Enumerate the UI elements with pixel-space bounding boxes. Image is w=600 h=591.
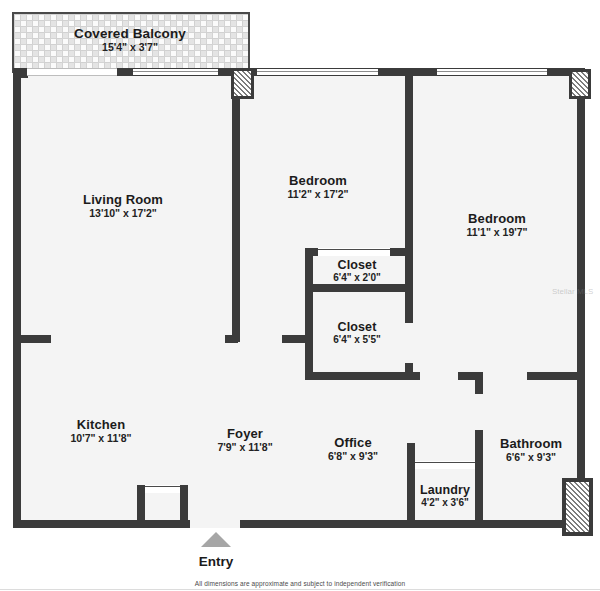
entry-label: Entry xyxy=(199,554,234,569)
room-label-bedroom-1: Bedroom 11'2" x 17'2" xyxy=(287,173,348,201)
wall xyxy=(305,248,313,380)
wall xyxy=(305,372,420,380)
room-label-office: Office 6'8" x 9'3" xyxy=(328,435,378,463)
wall xyxy=(405,68,413,323)
wall xyxy=(475,430,483,528)
wall xyxy=(475,372,483,394)
structural-column xyxy=(569,69,591,99)
room-label-bedroom-2: Bedroom 11'1" x 19'7" xyxy=(466,211,527,239)
wall xyxy=(13,335,51,343)
room-label-living-room: Living Room 13'10" x 17'2" xyxy=(83,192,163,220)
room-label-foyer: Foyer 7'9" x 11'8" xyxy=(217,426,272,454)
wall xyxy=(232,68,240,342)
balcony-door-opening xyxy=(27,68,117,76)
watermark: Stellar MLS xyxy=(552,287,593,296)
wall xyxy=(407,443,415,528)
wall xyxy=(527,372,585,380)
laundry-door-opening xyxy=(415,461,475,469)
wall xyxy=(180,485,188,528)
wall xyxy=(13,68,28,78)
window xyxy=(437,68,547,76)
structural-column xyxy=(231,68,254,99)
wall xyxy=(577,68,585,528)
room-label-laundry: Laundry 4'2" x 3'6" xyxy=(420,483,470,509)
room-label-closet-1: Closet 6'4" x 2'0" xyxy=(333,258,381,284)
wall xyxy=(137,485,145,528)
closet-door-opening xyxy=(318,248,390,256)
room-label-closet-2: Closet 6'4" x 5'5" xyxy=(333,320,381,346)
window xyxy=(133,68,218,76)
wall xyxy=(13,68,21,528)
window xyxy=(257,68,378,76)
wall xyxy=(305,284,413,292)
entry-arrow-icon xyxy=(201,532,231,547)
floor-plan: Covered Balcony 15'4" x 3'7" Living Room… xyxy=(0,0,600,591)
pantry-door-opening xyxy=(145,485,180,493)
shower-area xyxy=(562,478,593,536)
room-label-covered-balcony: Covered Balcony 15'4" x 3'7" xyxy=(74,26,186,54)
wall xyxy=(13,520,190,528)
room-label-kitchen: Kitchen 10'7" x 11'8" xyxy=(70,417,131,445)
wall xyxy=(225,335,238,343)
wall xyxy=(305,248,318,256)
disclaimer-text: All dimensions are approximate and subje… xyxy=(195,580,405,587)
room-label-bathroom: Bathroom 6'6" x 9'3" xyxy=(500,436,562,464)
footer-divider xyxy=(0,589,600,590)
